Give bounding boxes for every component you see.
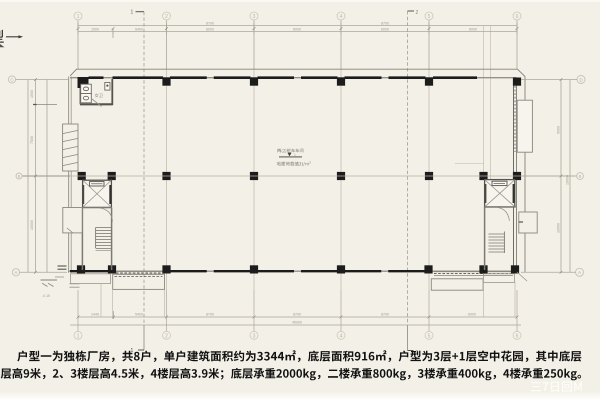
svg-text:2: 2 (165, 14, 168, 20)
svg-text:1500: 1500 (30, 90, 34, 98)
svg-text:5400: 5400 (135, 28, 143, 32)
svg-text:6000: 6000 (293, 28, 301, 32)
svg-text:7500: 7500 (30, 136, 34, 144)
svg-text:8700: 8700 (381, 312, 389, 316)
svg-text:B: B (18, 174, 21, 179)
svg-text:5400: 5400 (135, 312, 143, 316)
svg-text:6000: 6000 (469, 28, 477, 32)
svg-text:4: 4 (340, 14, 343, 20)
svg-text:1: 1 (294, 153, 296, 157)
svg-text:10000: 10000 (557, 223, 561, 233)
svg-text:2: 2 (165, 334, 168, 340)
svg-text:4: 4 (340, 334, 343, 340)
svg-text:8700: 8700 (381, 22, 389, 26)
svg-text:5: 5 (428, 14, 431, 20)
svg-text:B: B (579, 174, 582, 179)
svg-text:1: 1 (77, 14, 80, 20)
svg-text:10000: 10000 (30, 220, 34, 230)
svg-text:8700: 8700 (293, 312, 301, 316)
svg-text:A: A (578, 270, 581, 275)
svg-text:19000: 19000 (566, 175, 570, 185)
svg-text:5: 5 (428, 334, 431, 340)
svg-text:1440: 1440 (91, 312, 99, 316)
svg-text:45000: 45000 (292, 320, 302, 324)
svg-text:6000: 6000 (206, 28, 214, 32)
svg-text:1500: 1500 (91, 28, 99, 32)
svg-text:9000: 9000 (557, 126, 561, 134)
svg-text:2: 2 (416, 10, 419, 16)
svg-text:1: 1 (77, 334, 80, 340)
svg-text:6: 6 (516, 14, 519, 20)
svg-text:8700: 8700 (206, 312, 214, 316)
svg-text:3: 3 (253, 334, 256, 340)
svg-text:3: 3 (253, 14, 256, 20)
svg-text:A: A (14, 270, 17, 275)
svg-text:8700: 8700 (206, 22, 214, 26)
svg-text:1: 1 (131, 10, 134, 16)
svg-text:6: 6 (516, 334, 519, 340)
svg-text:6000: 6000 (468, 312, 476, 316)
svg-text:-0.15: -0.15 (42, 294, 50, 298)
svg-text:6000: 6000 (381, 28, 389, 32)
